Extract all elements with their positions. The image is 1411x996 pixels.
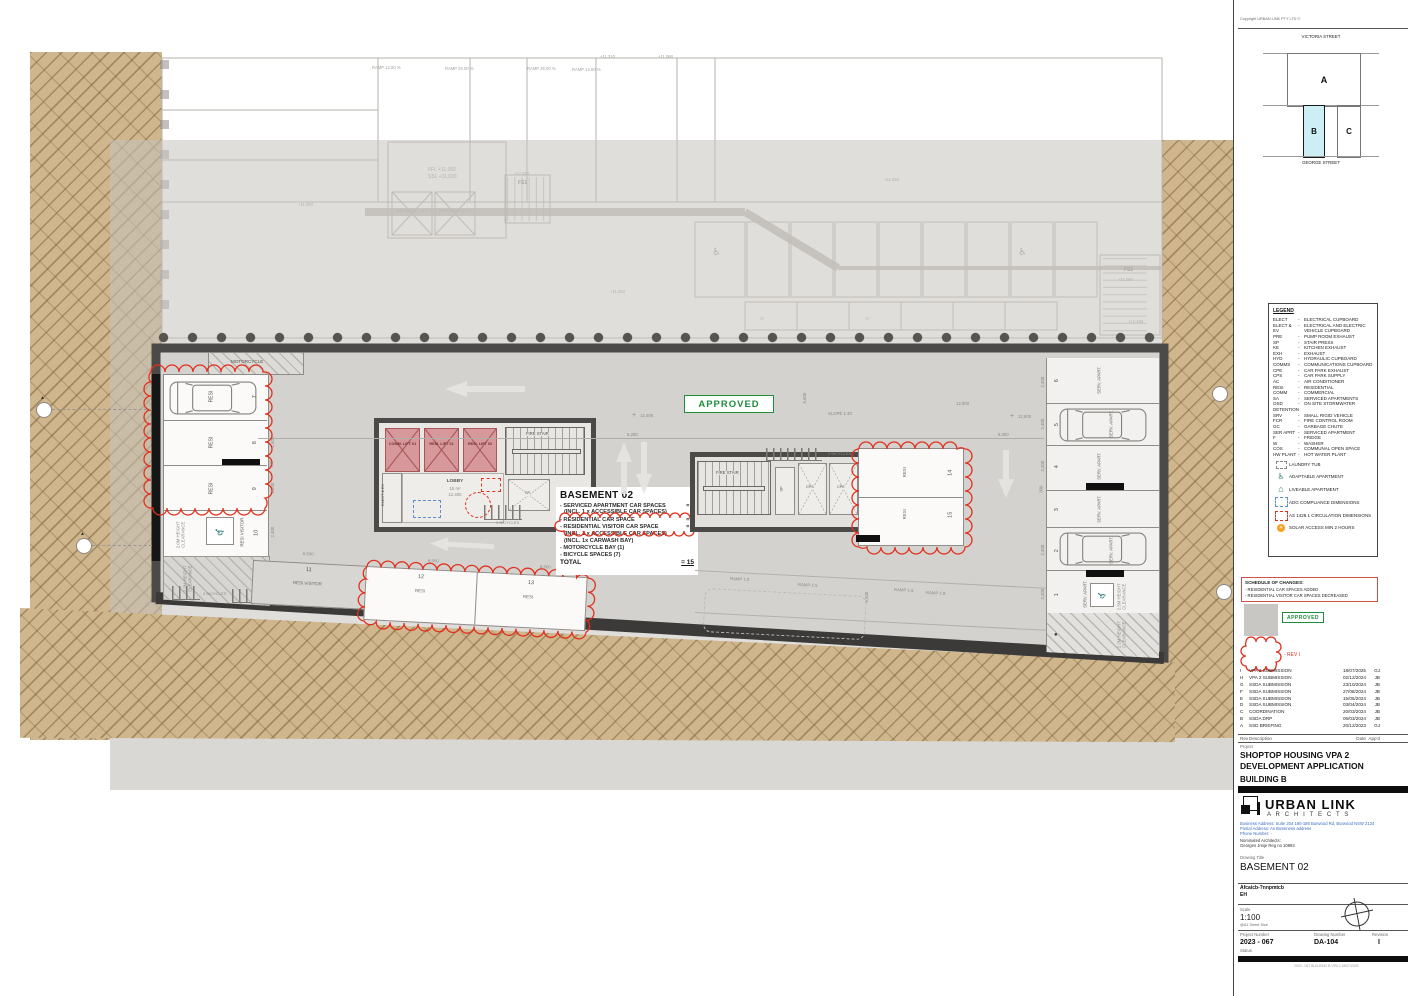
spot-12800: 12,800 [1018, 415, 1031, 419]
bikes2-label: 2 BICYCLES [828, 452, 851, 456]
revision-desc: SSDA SUBMISSION [1249, 689, 1334, 696]
bay8-number: 8 [253, 441, 259, 444]
spot-12800: 12,800 [956, 402, 969, 406]
project-name-line1: SHOPTOP HOUSING VPA 2 [1240, 751, 1349, 760]
legend-box: LEGEND ELECT - ELECTRICAL CUPBOARD ELECT… [1268, 303, 1378, 557]
lift-resi-01: RESI. LIFT 01 [424, 428, 459, 472]
checked-by: EH [1240, 893, 1247, 898]
building-label: BUILDING B [1240, 776, 1287, 784]
section-marker-arrow: ▲ [40, 395, 45, 401]
dim-2400: 2,400 [271, 527, 275, 538]
aisle-arrow-up [616, 442, 632, 494]
clearance-22-label: 2.2M HEIGHT CLEARANCE [1117, 617, 1126, 653]
accessible-icon-box: ♿ [1090, 583, 1114, 607]
legend-desc: ON SITE STORMWATER [1304, 401, 1373, 412]
dim-2400: 2,400 [271, 483, 275, 494]
revision-appd: JB [1366, 709, 1380, 716]
drawing-title-label: Drawing Title [1240, 856, 1264, 860]
low-clearance-bay [1047, 613, 1159, 658]
dim-6250: 6,250 [627, 433, 638, 437]
approved-stamp: APPROVED [684, 395, 774, 413]
ramp-label: RAMP 1:8 [730, 577, 750, 582]
legend-desc: LIVEABLE APARTMENT [1289, 487, 1339, 492]
legend-desc: HOT WATER PLANT [1304, 452, 1373, 458]
legend-icon-row: ♿ ADAPTABLE APARTMENT [1273, 472, 1373, 481]
legend-entry: HW PLANT - HOT WATER PLANT [1273, 452, 1373, 458]
divider [1238, 734, 1408, 735]
legend-entry: OSD DETENTION - ON SITE STORMWATER [1273, 401, 1373, 412]
map-block-b-label: B [1311, 127, 1317, 136]
revision-row: G SSDA SUBMISSION 23/10/2024 JB [1240, 682, 1380, 689]
carwash-bay-outline [703, 588, 867, 640]
north-arrow-icon [1339, 896, 1375, 932]
revision-letter: A [1240, 723, 1249, 730]
drawing-number-label: Drawing Number [1314, 933, 1345, 937]
wheel-stop [222, 459, 260, 465]
legend-title: LEGEND [1273, 308, 1373, 314]
map-block-c-label: C [1346, 127, 1352, 136]
legend-desc: AS 1428.1 CIRCULATION DIMENSIONS [1289, 513, 1371, 518]
summary-line: (INCL. 1 x ACCESSIBLE CAR SPACES) [560, 532, 694, 538]
revision-appd: JB [1366, 716, 1380, 723]
revision-desc: SSDA DRP [1249, 716, 1334, 723]
bay-divider [163, 420, 267, 421]
revision-date: 15/05/2024 [1334, 696, 1366, 703]
ramp-label: RAMP 1:5 [894, 588, 914, 593]
revision-date: 02/12/2024 [1334, 675, 1366, 682]
revision-label: Revision [1372, 933, 1388, 937]
bay13-label: RESI [523, 595, 533, 600]
spot-cross: + [1010, 413, 1014, 420]
bay12-label: RESI [415, 589, 425, 594]
architect-name: Georges Jreije Reg no 10993 [1240, 844, 1295, 848]
summary-line: - RESIDENTIAL CAR SPACE [560, 518, 635, 524]
bay14-number: 14 [948, 470, 954, 476]
serv-bay1-number: 1 [1055, 593, 1061, 596]
divider [1238, 904, 1408, 905]
spot-cross: + [632, 412, 636, 419]
bay-divider [1047, 445, 1159, 446]
project-number-label: Project Number [1240, 933, 1269, 937]
fire-stair-label: FIRE STAIR [525, 432, 550, 436]
sp-label: SP [781, 486, 785, 491]
approved-mini-text: APPROVED [1287, 615, 1319, 621]
revision-date: 27/08/2024 [1334, 689, 1366, 696]
summary-box: BASEMENT 02 - SERVICED APARTMENT CAR SPA… [556, 487, 698, 575]
bay11-number: 11 [306, 568, 312, 574]
map-line [1263, 156, 1379, 157]
right-core: FIRE STAIR SP CPS CPE [690, 452, 870, 532]
upper-ramp-label: RAMP 12.50 % [572, 68, 601, 72]
bay15-label: RESI [903, 509, 907, 519]
revision-appd: JB [1366, 682, 1380, 689]
schedule-item: - RESIDENTIAL VISITOR CAR SPACES DECREAS… [1245, 593, 1374, 598]
clearance-25-label: 2.5M HEIGHT CLEARANCE [1117, 579, 1126, 615]
legend-icon-row: LAUNDRY TUB [1273, 461, 1373, 469]
adg-dashed-box [413, 500, 441, 518]
lift-comm-01: COMM. LIFT 01 [385, 428, 420, 472]
section-leader [92, 545, 152, 546]
revision-desc: VPA 2 SUBMISSION [1249, 668, 1334, 675]
bay8-label: RESI [209, 437, 214, 449]
cps-room: CPS [798, 463, 827, 515]
summary-line: (INCL. 1x CARWASH BAY) [560, 539, 694, 545]
revision-letter: E [1240, 696, 1249, 703]
section-marker [1216, 584, 1232, 600]
bike-rack [172, 586, 200, 600]
legend-abbr: HW PLANT [1273, 452, 1298, 458]
upper-level-marker: +11,060 [658, 55, 673, 59]
revision-appd: GJ [1366, 668, 1380, 675]
bay-divider [163, 465, 267, 466]
serv-bay4-number: 4 [1055, 465, 1061, 468]
revision-row: D SSDA SUBMISSION 03/04/2024 JB [1240, 702, 1380, 709]
stair-rail [703, 486, 765, 491]
urban-link-logo-icon [1241, 796, 1261, 816]
wheel-stop [1086, 570, 1124, 577]
lower-grey-band [110, 738, 1233, 790]
firm-sub: A R C H I T E C T S [1267, 812, 1350, 818]
status-label: Status [1240, 949, 1252, 953]
map-block-a: A [1287, 53, 1361, 107]
phone-number: Phone Number: - [1240, 832, 1272, 836]
bay10-number: 10 [254, 530, 260, 536]
dim-300: 300 [1039, 486, 1043, 493]
lift-resi-02: RESI. LIFT 02 [463, 428, 497, 472]
revision-value: I [1378, 939, 1380, 946]
upper-ramp-label: RAMP 25.00 % [445, 67, 474, 71]
bay14-label: RESI [903, 467, 907, 477]
bay15-number: 15 [948, 512, 954, 518]
revision-letter: B [1240, 716, 1249, 723]
drawing-number: DA-104 [1314, 939, 1338, 946]
serv-apart-column [1046, 358, 1159, 658]
revision-desc: SSDA SUBMISSION [1249, 682, 1334, 689]
adaptable-apartment-icon: ♿ [1277, 472, 1284, 481]
summary-line: - SERVICED APARTMENT CAR SPACES [560, 504, 666, 510]
title-block: Copyright URBAN LINK PTY LTD © VICTORIA … [1233, 0, 1411, 996]
dim-2400: 2,400 [1041, 419, 1045, 430]
revision-date: 23/10/2024 [1334, 682, 1366, 689]
section-leader [52, 409, 152, 410]
summary-line: (INCL. 1 x ACCESSIBLE CAR SPACES) [560, 510, 694, 516]
schedule-title: SCHEDULE OF CHANGES: [1245, 580, 1374, 585]
revision-appd: JB [1366, 689, 1380, 696]
wheel-stop [1086, 483, 1124, 490]
solar-access-icon: ☀ [1277, 524, 1285, 532]
revision-letter: C [1240, 709, 1249, 716]
summary-total-value: = 15 [681, 560, 694, 567]
bay13-number: 13 [528, 581, 534, 587]
section-marker [1212, 386, 1228, 402]
street-top-label: VICTORIA STREET [1271, 35, 1371, 39]
copyright-text: Copyright URBAN LINK PTY LTD © [1240, 18, 1300, 22]
clearance-20-label: 2.0M HEIGHT CLEARANCE [176, 514, 185, 556]
bay-divider [163, 510, 267, 511]
street-bottom-label: GEORGE STREET [1271, 161, 1371, 165]
dim-6500: 6,500 [303, 552, 314, 557]
revision-row: I VPA 2 SUBMISSION 18/07/2025 GJ [1240, 668, 1380, 675]
revision-date: 06/03/2024 [1334, 716, 1366, 723]
section-marker [76, 538, 92, 554]
serv-bay1-label: SERV. APART. [1084, 580, 1088, 607]
legend-icon-row: AS 1428.1 CIRCULATION DIMENSIONS [1273, 511, 1373, 521]
serv-bay5-number: 5 [1055, 423, 1061, 426]
revision-row: E SSDA SUBMISSION 15/05/2024 JB [1240, 696, 1380, 703]
bay10-label: RESI VISITOR [240, 518, 244, 547]
divider [1238, 883, 1408, 884]
fire-stair-label: FIRE STAIR [715, 471, 740, 475]
divider-bar [1238, 786, 1408, 793]
aisle-arrow-down [636, 442, 652, 494]
upper-level-marker: +11,310 [600, 55, 615, 59]
divider [1238, 28, 1408, 29]
summary-revised-lines: - RESIDENTIAL CAR SPACE = 7 - RESIDENTIA… [560, 518, 694, 531]
dim-2400: 2,400 [1041, 589, 1045, 600]
car-bay5 [1055, 406, 1151, 444]
aisle-arrow-left [445, 381, 525, 397]
sheet-size: @A1 Sheet Size [1240, 924, 1268, 928]
column-dot: ● [1054, 632, 1058, 638]
serv-bay5-label: SERV. APART. [1110, 410, 1114, 437]
legend-desc: ADAPTABLE APARTMENT [1289, 474, 1344, 479]
as1428-dashed-box [481, 478, 501, 492]
section-marker [36, 402, 52, 418]
wheel-stop [856, 535, 880, 542]
revision-appd: JB [1366, 702, 1380, 709]
plot-fineprint: 2023 - 067 BUILDING B VPA 2 18/07/2025 [1294, 965, 1358, 968]
lobby-label: LOBBY [435, 480, 475, 485]
bay-divider [1047, 403, 1159, 404]
dim-6500: 6,500 [540, 565, 551, 570]
elect-ev-label: ELECT & EV [382, 484, 386, 506]
serv-bay3-label: SERV. APART. [1098, 495, 1102, 522]
legend-desc: LAUNDRY TUB [1289, 462, 1321, 467]
dim-6050: 6,050 [998, 433, 1009, 437]
legend-entries: ELECT - ELECTRICAL CUPBOARD ELECT & EV -… [1273, 317, 1373, 458]
approved-stamp-text: APPROVED [698, 399, 759, 410]
rev-cloud-label: - REV I [1284, 652, 1300, 658]
serv-bay2-label: SERV. APART. [1110, 536, 1114, 563]
dim-6500: 6,500 [428, 559, 439, 564]
cpe-room: CPE [829, 463, 858, 515]
dim-5600: 5,600 [803, 393, 807, 404]
section-marker-arrow: ▲ [80, 531, 85, 537]
divider [1238, 742, 1408, 743]
legend-desc: ELECTRICAL AND ELECTRIC VEHICLE CUPBOARD [1304, 323, 1373, 334]
sp-closet [775, 467, 795, 515]
revision-desc: SSDA SUBMISSION [1249, 702, 1334, 709]
approved-mini-stamp: APPROVED [1282, 612, 1324, 623]
revision-row: C COORDINATION 20/03/2024 JB [1240, 709, 1380, 716]
dim-5500: 5,500 [865, 592, 869, 603]
revision-appd: JB [1366, 675, 1380, 682]
bay12-number: 12 [418, 575, 424, 581]
bay9-number: 9 [253, 487, 259, 490]
bay7-number: 7 [253, 395, 259, 398]
map-block-a-label: A [1321, 75, 1328, 85]
bay-divider [1047, 490, 1159, 491]
as1428-circulation-icon [1275, 511, 1288, 521]
revision-appd: JB [1366, 696, 1380, 703]
revision-row: A SSD BRIEFING 20/12/2023 GJ [1240, 723, 1380, 730]
lobby-area: 15 m² [435, 487, 475, 491]
bikes3-label: 3 BICYCLES [496, 521, 519, 525]
schedule-item: - RESIDENTIAL CAR SPACES ADDED [1245, 587, 1374, 592]
revision-letter: H [1240, 675, 1249, 682]
bike-rack [766, 448, 822, 461]
serv-bay3-number: 3 [1055, 508, 1061, 511]
cpe-label: CPE [837, 486, 845, 490]
serv-bay6-number: 6 [1055, 379, 1061, 382]
dim-2400: 2,400 [1041, 461, 1045, 472]
legend-icon-row: ☀ SOLAR ACCESS MIN 2 HOURS [1273, 524, 1373, 532]
legend-abbr: OSD DETENTION [1273, 401, 1298, 412]
serv-bay4-label: SERV. APART. [1098, 452, 1102, 479]
upper-ramp-label: RAMP 12.50 % [372, 66, 401, 70]
revision-appd: GJ [1366, 723, 1380, 730]
serv-bay2-number: 2 [1055, 549, 1061, 552]
firm-name: URBAN LINK [1265, 797, 1356, 812]
material-swatch [1244, 604, 1278, 636]
car-bay2 [1055, 530, 1151, 568]
revision-row: F SSDA SUBMISSION 27/08/2024 JB [1240, 689, 1380, 696]
revision-desc: VPA 2 SUBMISSION [1249, 675, 1334, 682]
scale-value: 1:100 [1240, 914, 1260, 922]
schedule-of-changes: SCHEDULE OF CHANGES: - RESIDENTIAL CAR S… [1241, 577, 1378, 602]
ramp-label: RAMP 1:5 [798, 583, 818, 588]
legend-desc: SOLAR ACCESS MIN 2 HOURS [1289, 525, 1355, 530]
lift-label: RESI. LIFT 01 [425, 442, 458, 446]
motorcycle-label: MOTORCYCLE [231, 360, 263, 365]
divider [1238, 930, 1408, 931]
map-block-c: C [1337, 105, 1361, 158]
aisle-arrow-down [998, 450, 1014, 498]
wheelchair-icon: ♿ [212, 523, 228, 539]
ramp-label: RAMP 1:8 [926, 591, 946, 596]
project-name-line2: DEVELOPMENT APPLICATION [1240, 762, 1364, 771]
dim-2400: 2,400 [1041, 545, 1045, 556]
bikes2-label: 2 BICYCLES [203, 592, 226, 596]
revision-desc: SSD BRIEFING [1249, 723, 1334, 730]
serv-bay6-label: SERV. APART. [1098, 366, 1102, 393]
dim-line [258, 438, 1044, 439]
revision-date: 20/03/2024 [1334, 709, 1366, 716]
legend-abbr: ELECT & EV [1273, 323, 1298, 334]
dim-300: 300 [269, 461, 273, 468]
summary-line: - BICYCLE SPACES (7) [560, 553, 694, 559]
map-block-b: B [1303, 105, 1325, 158]
cps-label: CPS [806, 486, 814, 490]
adg-compliance-icon [1275, 497, 1288, 507]
laundry-tub-icon [1276, 461, 1287, 469]
revision-desc: SSDA SUBMISSION [1249, 696, 1334, 703]
bay-divider [1047, 527, 1159, 528]
drawing-title: BASEMENT 02 [1240, 863, 1309, 873]
liveable-apartment-icon: ⌂ [1278, 484, 1283, 494]
project-number: 2023 - 067 [1240, 939, 1273, 946]
revision-desc: COORDINATION [1249, 709, 1334, 716]
revision-table: I VPA 2 SUBMISSION 18/07/2025 GJ H VPA 2… [1240, 668, 1380, 730]
revision-letter: F [1240, 689, 1249, 696]
summary-line: - MOTORCYCLE BAY (1) [560, 546, 694, 552]
spot-12400: 12,400 [640, 414, 653, 418]
revision-row: H VPA 2 SUBMISSION 02/12/2024 JB [1240, 675, 1380, 682]
legend-desc: ADG COMPLIANCE DIMENSIONS [1289, 500, 1360, 505]
revision-date: 03/04/2024 [1334, 702, 1366, 709]
accessible-icon-box: ♿ [206, 517, 234, 545]
slope-label: SLOPE 1:40 [828, 412, 852, 416]
lift-label: COMM. LIFT 01 [386, 442, 419, 446]
bay9-label: RESI [209, 483, 214, 495]
location-key-map: VICTORIA STREET A B C GEORGE STREET [1271, 33, 1371, 168]
upper-ramp-label: RAMP 25.00 % [527, 67, 556, 71]
dim-2400: 2,400 [1041, 377, 1045, 388]
bike-rack [484, 505, 522, 520]
legend-icon-row: ADG COMPLIANCE DIMENSIONS [1273, 497, 1373, 507]
legend-icon-row: ⌂ LIVEABLE APARTMENT [1273, 484, 1373, 494]
divider-bar [1238, 956, 1408, 962]
wheelchair-icon: ♿ [1095, 588, 1109, 602]
stair-rail [512, 449, 581, 454]
summary-line: - RESIDENTIAL VISITOR CAR SPACE [560, 525, 659, 531]
checked-text: Afcaicb-?nnpmtcb [1240, 886, 1284, 891]
bay7-label: RESI [209, 391, 214, 403]
revision-letter: G [1240, 682, 1249, 689]
scale-label: Scale [1240, 908, 1250, 912]
project-label: Project [1240, 745, 1253, 749]
column-grid-dots [158, 332, 1160, 343]
sp-label: SP [525, 492, 530, 496]
summary-total-label: TOTAL [560, 560, 581, 567]
revision-date: 18/07/2025 [1334, 668, 1366, 675]
legend-entry: ELECT & EV - ELECTRICAL AND ELECTRIC VEH… [1273, 323, 1373, 334]
revision-letter: D [1240, 702, 1249, 709]
revision-date: 20/12/2023 [1334, 723, 1366, 730]
drawing-sheet: RAMP 12.50 % RAMP 25.00 % RAMP 25.00 % R… [0, 0, 1411, 996]
rev-cloud-sample [1246, 642, 1276, 666]
revision-row: B SSDA DRP 06/03/2024 JB [1240, 716, 1380, 723]
lift-label: RESI. LIFT 02 [464, 442, 496, 446]
revision-letter: I [1240, 668, 1249, 675]
